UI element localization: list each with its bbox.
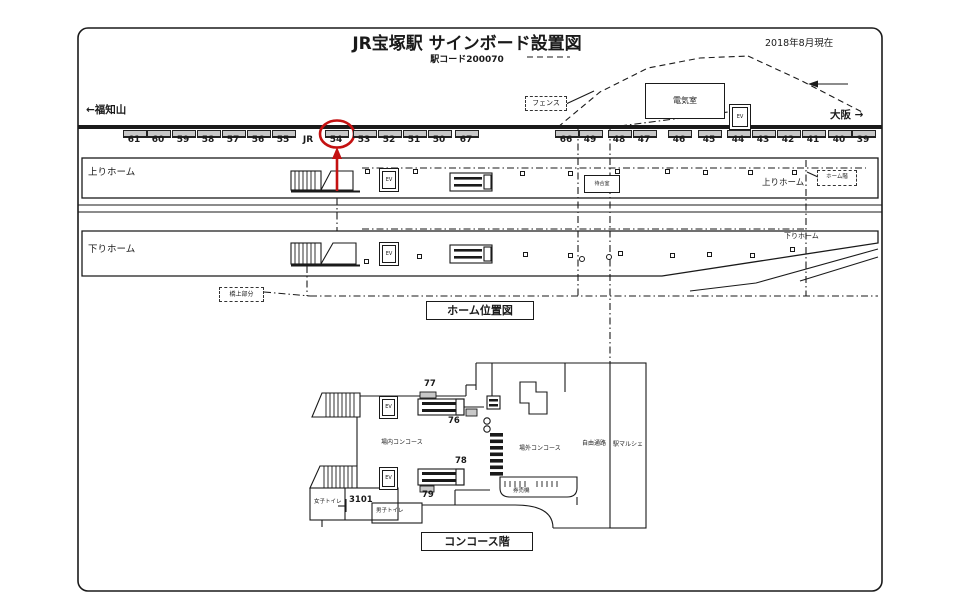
electric-room-box: 電気室	[645, 83, 725, 119]
elevator-down-platform: EV	[379, 242, 399, 266]
down-platform-label-left: 下りホーム	[88, 245, 135, 255]
concourse-sign-77: 77	[424, 380, 436, 389]
waiting-room-box: 待合室	[584, 175, 620, 193]
station-marche-label: 駅マルシェ	[613, 442, 643, 448]
track-signboard-number: 54	[321, 136, 351, 145]
platform-pillar	[792, 170, 797, 175]
platform-column-round	[606, 254, 612, 260]
inside-concourse-label: 場内コンコース	[381, 440, 423, 446]
date-note: 2018年8月現在	[765, 39, 833, 49]
up-platform-label-left: 上りホーム	[88, 168, 135, 178]
track-signboard-number: JR	[293, 136, 323, 145]
platform-pillar	[520, 171, 525, 176]
outside-concourse-label: 場外コンコース	[519, 446, 561, 452]
platform-pillar	[750, 253, 755, 258]
concourse-caption: コンコース階	[421, 532, 533, 551]
platform-pillar	[615, 169, 620, 174]
elevator-label: EV	[732, 107, 748, 127]
concourse-sign-78: 78	[455, 457, 467, 466]
platform-pillar	[413, 169, 418, 174]
platform-pillar	[665, 169, 670, 174]
track-signboard-number: 49	[575, 136, 605, 145]
platform-pillar	[670, 253, 675, 258]
down-platform-label-right: 下りホーム	[784, 233, 819, 240]
platform-map-caption: ホーム位置図	[426, 301, 534, 320]
platform-pillar	[568, 171, 573, 176]
concourse-sign-76: 76	[448, 417, 460, 426]
elevator-label: EV	[382, 245, 396, 263]
direction-fukuchiyama: ←福知山	[86, 105, 126, 116]
free-passage-label: 自由通路	[582, 441, 606, 447]
platform-pillar	[707, 252, 712, 257]
elevator-concourse-north: EV	[379, 396, 398, 419]
elevator-trackside: EV	[729, 104, 751, 130]
elevator-up-platform: EV	[379, 168, 399, 192]
platform-pillar	[568, 253, 573, 258]
direction-osaka: 大阪 →	[830, 110, 863, 121]
signboard-placement-diagram: JR宝塚駅 サインボード設置図 駅コード200070 2018年8月現在 ←福知…	[0, 0, 960, 605]
station-code: 駅コード200070	[430, 56, 504, 65]
track-signboard-number: 45	[694, 136, 724, 145]
womens-toilet-label: 女子トイレ	[314, 500, 342, 506]
platform-floor-tag: ホーム階	[817, 170, 857, 186]
concourse-sign-3101: 3101	[349, 496, 373, 505]
elevator-label: EV	[382, 171, 396, 189]
bridge-part-tag: 橋上部分	[219, 287, 264, 302]
ticket-machines-label: 券売機	[513, 489, 530, 495]
track-signboard-number: 47	[629, 136, 659, 145]
platform-pillar	[790, 247, 795, 252]
elevator-label: EV	[382, 399, 395, 416]
elevator-concourse-south: EV	[379, 467, 398, 490]
platform-pillar	[748, 170, 753, 175]
platform-pillar	[365, 169, 370, 174]
page-title: JR宝塚駅 サインボード設置図	[352, 36, 581, 53]
elevator-label: EV	[382, 470, 395, 487]
track-signboard-number: 46	[664, 136, 694, 145]
platform-pillar	[364, 259, 369, 264]
track-signboard-number: 67	[451, 136, 481, 145]
platform-column-round	[579, 256, 585, 262]
platform-pillar	[618, 251, 623, 256]
platform-pillar	[703, 170, 708, 175]
up-platform-label-right: 上りホーム	[762, 179, 804, 188]
mens-toilet-label: 男子トイレ	[376, 509, 404, 515]
track-signboard-number: 50	[424, 136, 454, 145]
concourse-sign-79: 79	[422, 491, 434, 500]
fence-tag: フェンス	[525, 96, 567, 111]
platform-pillar	[523, 252, 528, 257]
platform-pillar	[417, 254, 422, 259]
track-signboard-number: 39	[848, 136, 878, 145]
